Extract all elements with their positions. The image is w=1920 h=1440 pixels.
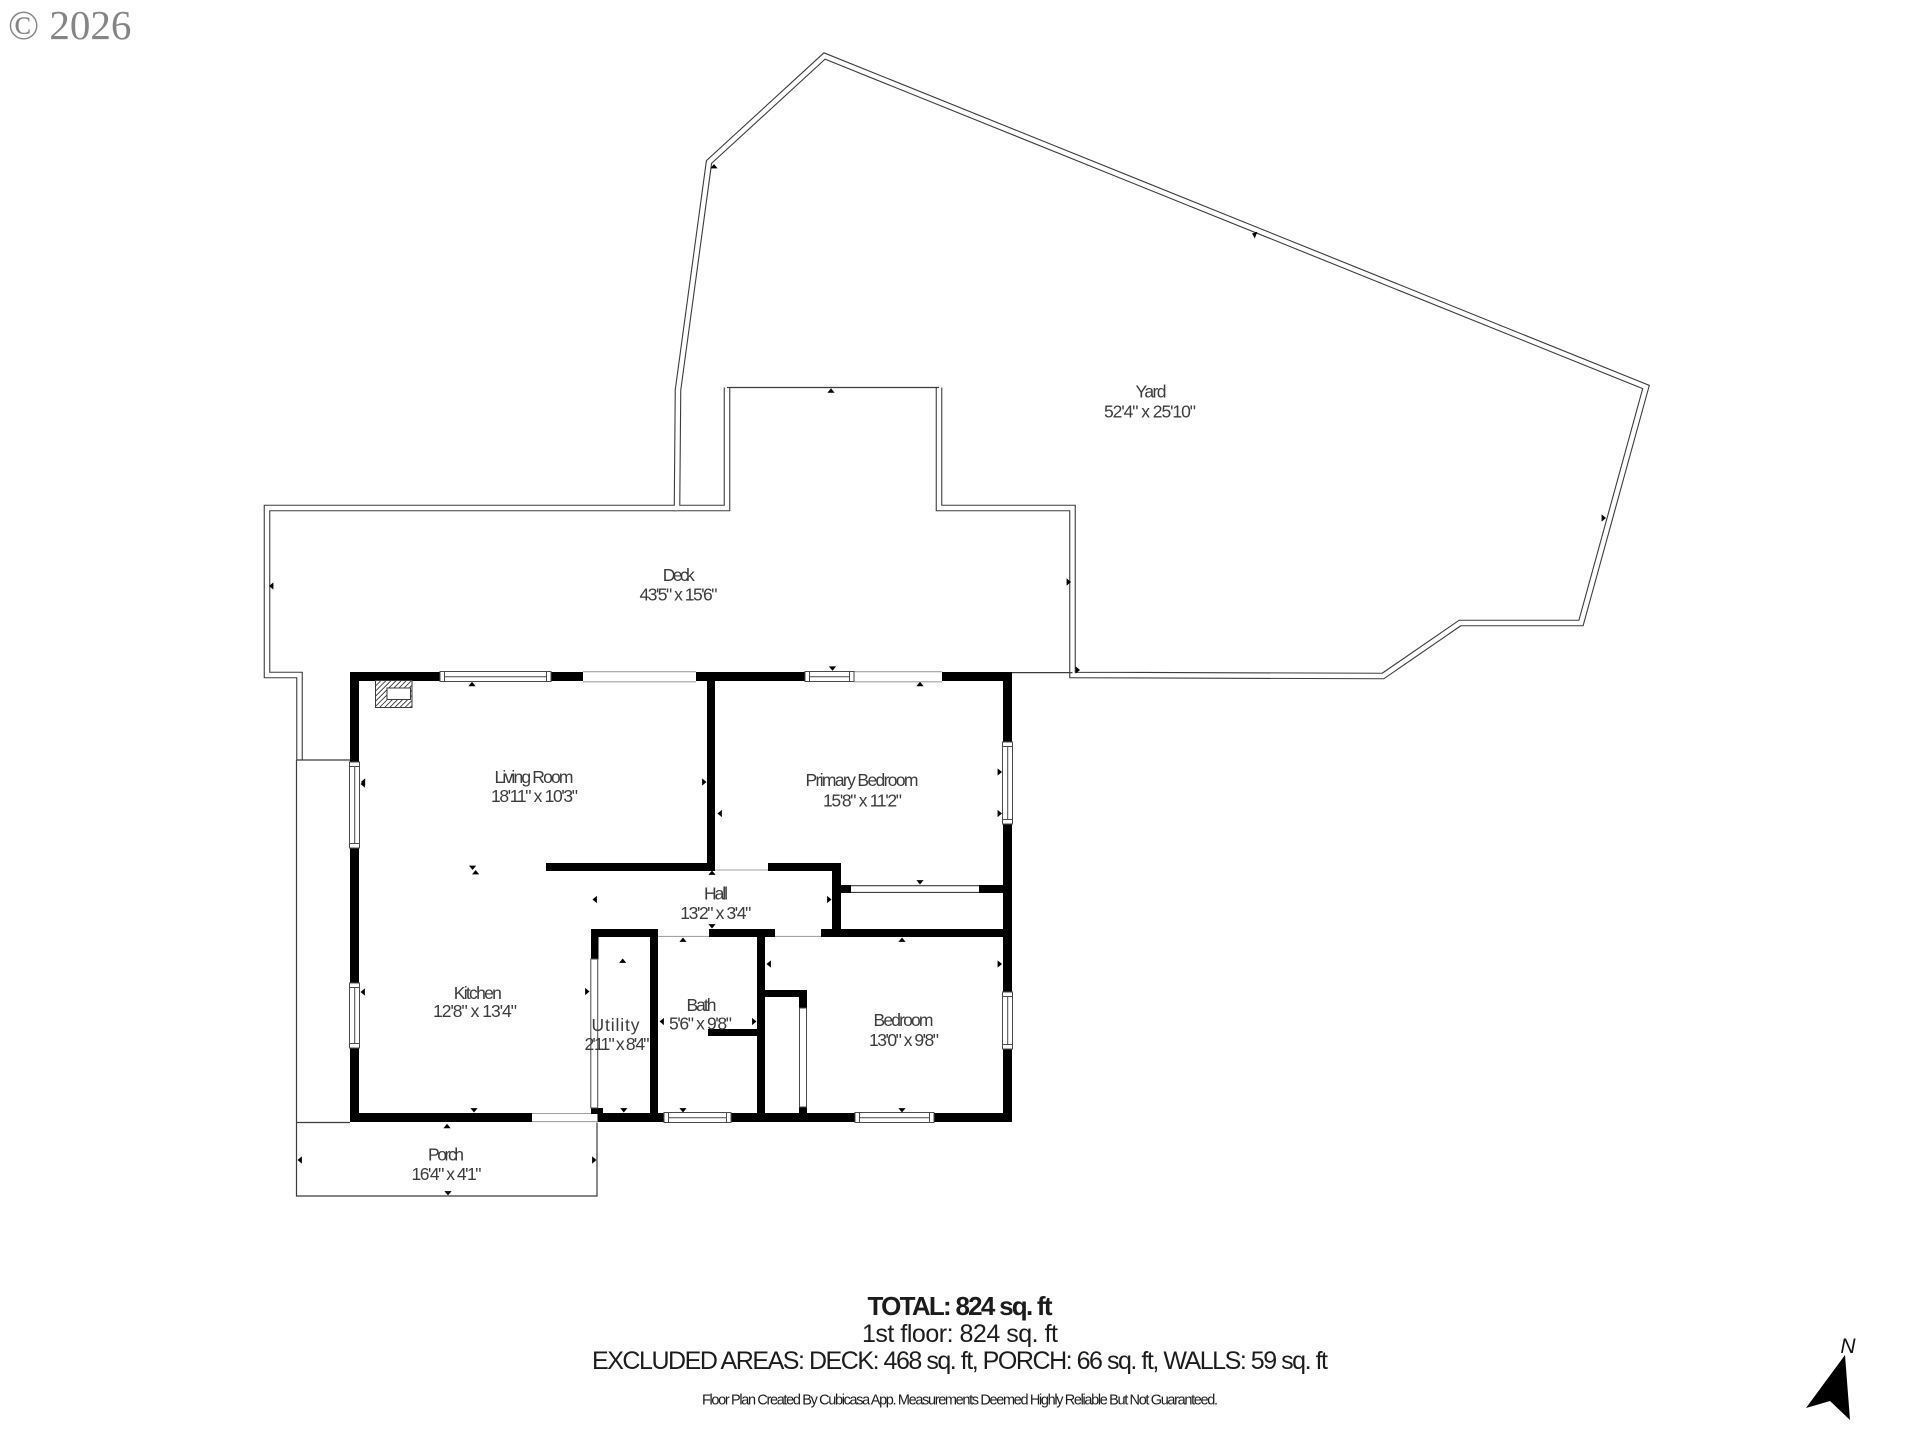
svg-text:Porch: Porch [428, 1145, 464, 1165]
svg-text:2'11" x 8'4": 2'11" x 8'4" [585, 1034, 650, 1054]
svg-text:5'6" x 9'8": 5'6" x 9'8" [669, 1014, 732, 1034]
svg-text:Bedroom: Bedroom [874, 1010, 934, 1030]
svg-text:13'2" x 3'4": 13'2" x 3'4" [680, 903, 751, 923]
svg-text:Hall: Hall [704, 884, 728, 904]
svg-text:12'8" x 13'4": 12'8" x 13'4" [433, 1001, 517, 1021]
svg-text:1st floor: 824 sq. ft: 1st floor: 824 sq. ft [862, 1320, 1058, 1348]
svg-text:Bath: Bath [687, 995, 717, 1015]
svg-text:Utility: Utility [592, 1015, 640, 1035]
svg-text:© 2026: © 2026 [8, 2, 131, 48]
svg-text:EXCLUDED AREAS: DECK: 468 sq.: EXCLUDED AREAS: DECK: 468 sq. ft, PORCH:… [592, 1347, 1328, 1375]
svg-text:Deck: Deck [663, 565, 695, 585]
svg-text:Floor Plan Created By Cubicasa: Floor Plan Created By Cubicasa App. Meas… [702, 1393, 1218, 1409]
svg-text:N: N [1840, 1335, 1856, 1358]
svg-text:Yard: Yard [1136, 382, 1167, 402]
svg-text:15'8" x 11'2": 15'8" x 11'2" [823, 791, 902, 811]
svg-text:TOTAL: 824 sq. ft: TOTAL: 824 sq. ft [868, 1291, 1053, 1321]
svg-text:Kitchen: Kitchen [454, 983, 502, 1003]
svg-text:18'11" x 10'3": 18'11" x 10'3" [491, 786, 578, 806]
svg-text:43'5" x 15'6": 43'5" x 15'6" [640, 585, 718, 605]
svg-text:Living Room: Living Room [495, 767, 574, 787]
svg-text:Primary Bedroom: Primary Bedroom [806, 770, 919, 790]
svg-text:52'4" x 25'10": 52'4" x 25'10" [1104, 402, 1196, 422]
svg-text:16'4" x 4'1": 16'4" x 4'1" [412, 1164, 482, 1184]
svg-text:13'0" x 9'8": 13'0" x 9'8" [869, 1030, 939, 1050]
